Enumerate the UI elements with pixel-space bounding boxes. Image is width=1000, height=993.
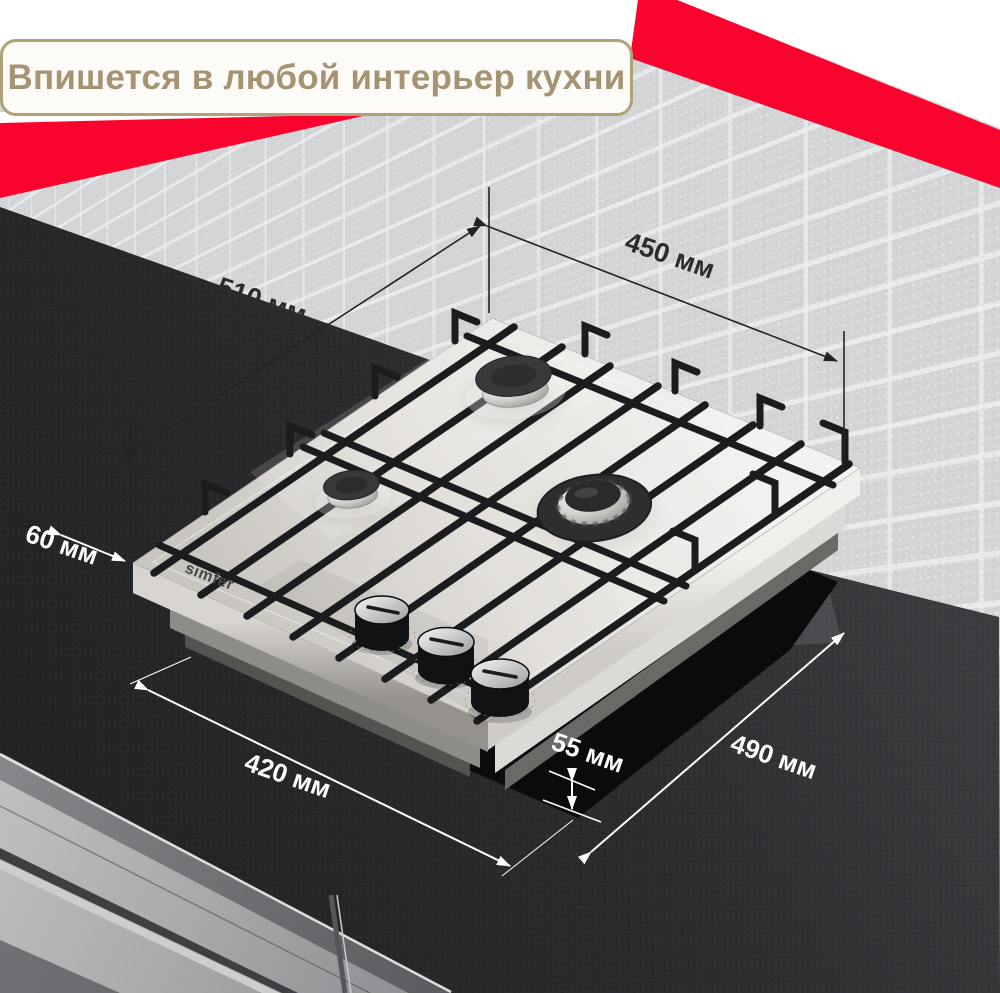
knob-1	[352, 596, 412, 655]
knob-2	[415, 628, 477, 690]
scene-illustration: simfer	[0, 0, 1000, 993]
headline-text: Впишется в любой интерьер кухни	[8, 58, 626, 98]
knob-3	[468, 659, 532, 723]
headline-badge: Впишется в любой интерьер кухни	[0, 39, 633, 116]
label-450: 450 мм	[621, 226, 718, 284]
product-dimension-scene: simfer	[0, 0, 1000, 993]
red-ribbon-left	[0, 114, 372, 198]
